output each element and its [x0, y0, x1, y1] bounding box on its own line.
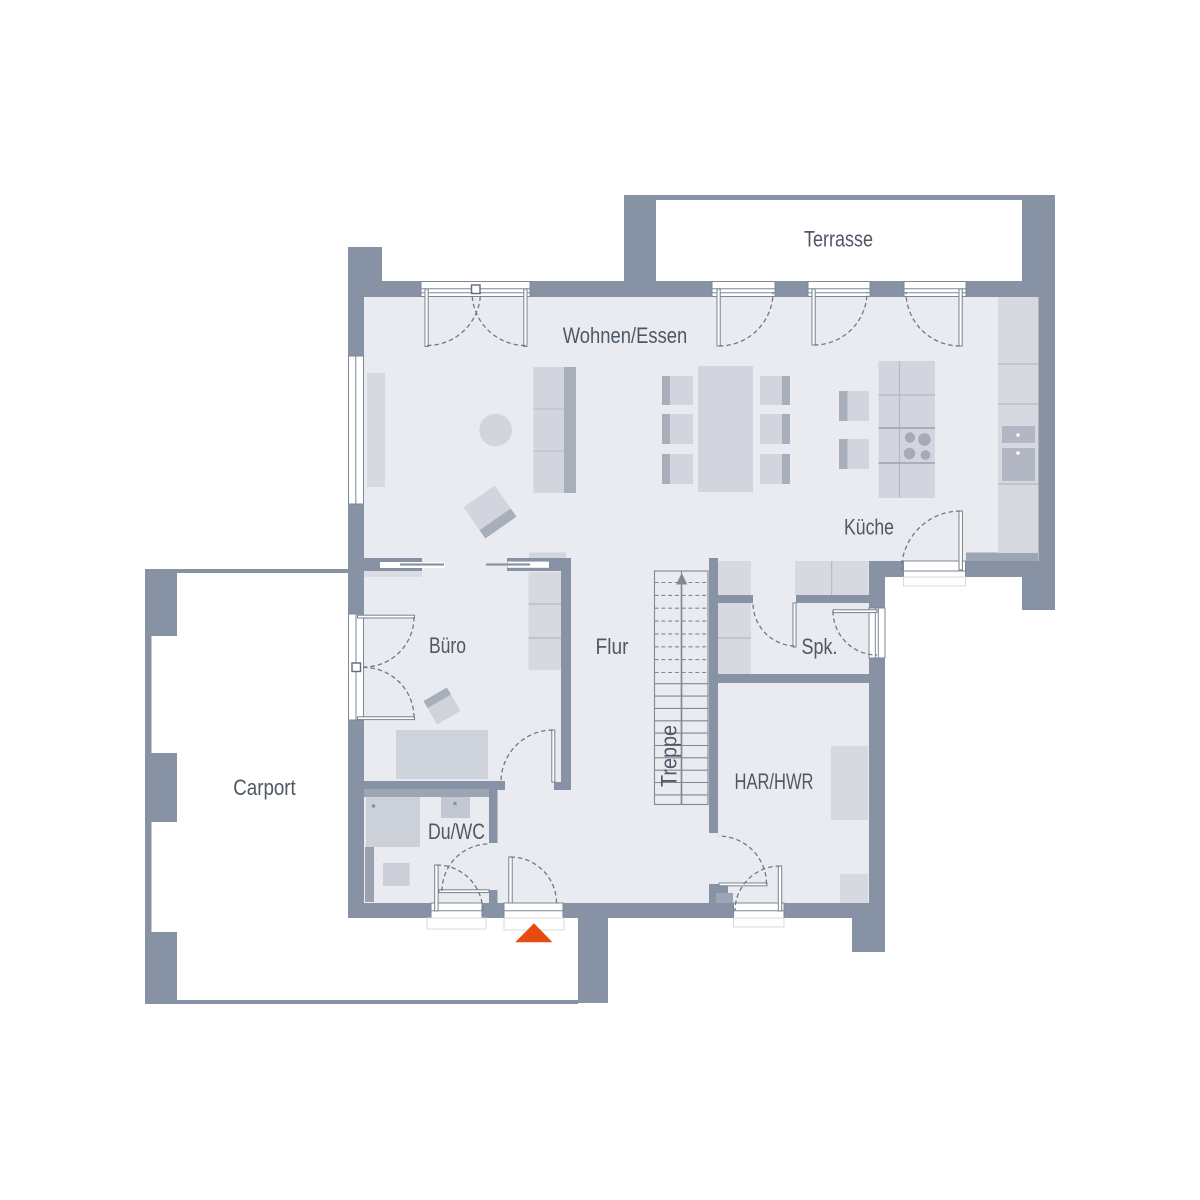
svg-text:Flur: Flur: [596, 634, 629, 659]
svg-text:Spk.: Spk.: [802, 634, 838, 659]
svg-text:Du/WC: Du/WC: [428, 819, 485, 844]
svg-text:Carport: Carport: [233, 775, 296, 800]
svg-text:HAR/HWR: HAR/HWR: [735, 769, 814, 794]
svg-text:Büro: Büro: [429, 633, 466, 658]
svg-text:Wohnen/Essen: Wohnen/Essen: [563, 323, 688, 348]
svg-text:Küche: Küche: [844, 515, 894, 540]
svg-text:Treppe: Treppe: [657, 725, 682, 787]
svg-text:Terrasse: Terrasse: [804, 227, 873, 252]
